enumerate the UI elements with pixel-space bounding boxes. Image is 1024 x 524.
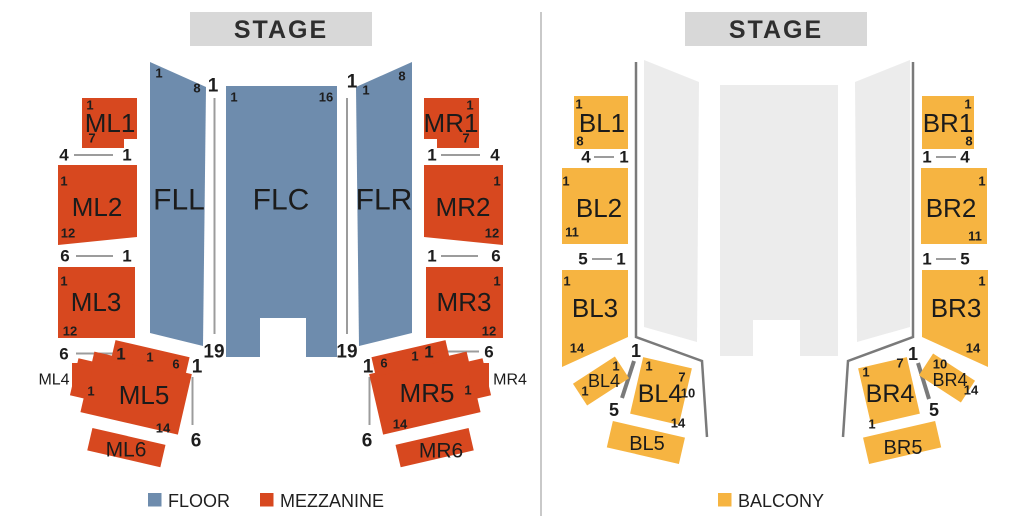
seat-row-number: 6 — [491, 247, 500, 266]
section-BR4-label: BR4 — [866, 380, 915, 408]
seat-row-number: 1 — [60, 174, 67, 189]
seat-maps-svg: STAGE FLL FLC FLR — [0, 0, 1024, 524]
legend-swatch-mezzanine — [260, 493, 274, 507]
stage-label-left: STAGE — [234, 16, 328, 44]
seat-row-number: 1 — [192, 357, 203, 378]
legend-floor-mezz: FLOOR MEZZANINE — [148, 491, 384, 511]
seat-row-number: 1 — [575, 97, 582, 112]
section-ML6-label: ML6 — [106, 439, 147, 462]
seat-row-number: 1 — [146, 350, 153, 365]
section-BR4-side-label: BR4 — [932, 370, 967, 390]
seat-row-number: 14 — [966, 341, 981, 356]
seat-row-number: 16 — [319, 90, 333, 105]
balcony-map: STAGE BL1 BR1 BL2 BR2 BL3 BR3 BL — [562, 12, 988, 511]
seat-row-number: 1 — [619, 148, 628, 167]
seat-row-number: 7 — [88, 131, 95, 146]
seat-row-number: 4 — [581, 148, 591, 167]
seat-row-number: 4 — [490, 146, 500, 165]
seat-row-number: 19 — [203, 342, 224, 363]
seat-row-number: 5 — [578, 250, 587, 269]
seat-row-number: 1 — [208, 76, 219, 97]
seat-map-page: STAGE FLL FLC FLR — [0, 0, 1024, 524]
seat-row-number: 1 — [978, 174, 985, 189]
seat-row-number: 1 — [155, 66, 162, 81]
section-MR5-label: MR5 — [400, 378, 455, 408]
legend-balcony: BALCONY — [718, 491, 824, 511]
section-MR3-label: MR3 — [437, 287, 492, 317]
section-MR4-label: MR4 — [493, 372, 527, 389]
section-BL1-label: BL1 — [579, 108, 625, 138]
section-floor-disabled-left — [644, 60, 699, 342]
seat-row-number: 19 — [336, 342, 357, 363]
seat-row-number: 1 — [922, 250, 931, 269]
legend-label-floor: FLOOR — [168, 491, 230, 511]
seat-row-number: 1 — [122, 247, 131, 266]
seat-row-number: 11 — [968, 229, 982, 244]
legend-swatch-balcony — [718, 493, 732, 507]
seat-row-number: 1 — [612, 359, 619, 374]
section-floor-disabled-right — [855, 60, 910, 342]
section-BL5-label: BL5 — [629, 433, 665, 455]
seat-row-number: 12 — [482, 324, 496, 339]
seat-row-number: 10 — [681, 386, 695, 401]
section-MR2-label: MR2 — [436, 192, 491, 222]
seat-row-number: 1 — [230, 90, 237, 105]
seat-row-number: 7 — [678, 370, 685, 385]
seat-row-number: 8 — [576, 134, 583, 149]
seat-row-number: 1 — [427, 247, 436, 266]
section-BR3-label: BR3 — [931, 293, 982, 323]
seat-row-number: 14 — [393, 417, 408, 432]
seat-row-number: 1 — [978, 274, 985, 289]
seat-row-number: 1 — [60, 274, 67, 289]
seat-row-number: 8 — [965, 134, 972, 149]
section-FLL-label: FLL — [153, 184, 205, 217]
seat-row-number: 14 — [964, 383, 979, 398]
seat-row-number: 6 — [191, 431, 202, 452]
seat-row-number: 1 — [964, 97, 971, 112]
seat-row-number: 12 — [485, 226, 499, 241]
seat-row-number: 1 — [493, 174, 500, 189]
seat-row-number: 5 — [960, 250, 969, 269]
section-BL4-label: BL4 — [638, 380, 683, 408]
seat-row-number: 1 — [868, 417, 875, 432]
seat-row-number: 1 — [362, 83, 369, 98]
section-MR1-label: MR1 — [424, 108, 479, 138]
seat-row-number: 14 — [671, 416, 686, 431]
seat-row-number: 7 — [462, 131, 469, 146]
seat-row-number: 1 — [493, 274, 500, 289]
seat-row-number: 1 — [116, 345, 125, 364]
seat-row-number: 1 — [411, 349, 418, 364]
seat-row-number: 1 — [424, 343, 433, 362]
seat-row-number: 6 — [380, 356, 387, 371]
section-BL3-label: BL3 — [572, 293, 618, 323]
section-ML4-label: ML4 — [38, 372, 69, 389]
seat-row-number: 1 — [908, 344, 918, 364]
seat-row-number: 1 — [862, 365, 869, 380]
seat-row-number: 1 — [922, 148, 931, 167]
seat-row-number: 1 — [363, 357, 374, 378]
seat-row-number: 6 — [60, 247, 69, 266]
section-FLC-label: FLC — [253, 184, 310, 217]
seat-row-number: 1 — [563, 274, 570, 289]
section-ML2-label: ML2 — [72, 192, 123, 222]
seat-row-number: 5 — [929, 400, 939, 420]
seat-row-number: 6 — [59, 345, 68, 364]
section-ML5-label: ML5 — [119, 380, 170, 410]
seat-row-number: 1 — [347, 72, 358, 93]
seat-row-number: 14 — [570, 341, 585, 356]
floor-mezz-map: STAGE FLL FLC FLR — [38, 12, 527, 511]
seat-row-number: 1 — [427, 146, 436, 165]
seat-row-number: 1 — [122, 146, 131, 165]
legend-swatch-floor — [148, 493, 162, 507]
seat-row-number: 1 — [562, 174, 569, 189]
section-FLR-label: FLR — [356, 184, 413, 217]
seat-row-number: 8 — [193, 81, 200, 96]
section-BR5-label: BR5 — [884, 437, 923, 459]
seat-row-number: 6 — [484, 343, 493, 362]
seat-row-number: 14 — [156, 421, 171, 436]
seat-row-number: 10 — [933, 357, 947, 372]
section-floor-disabled-center — [720, 85, 838, 356]
section-FLC[interactable] — [226, 86, 337, 357]
section-MR6-label: MR6 — [419, 440, 463, 463]
seat-row-number: 1 — [645, 359, 652, 374]
seat-row-number: 5 — [609, 400, 619, 420]
seat-row-number: 1 — [87, 384, 94, 399]
section-BL4-side-label: BL4 — [588, 371, 620, 391]
section-ML3-label: ML3 — [71, 287, 122, 317]
seat-row-number: 1 — [464, 383, 471, 398]
legend-label-mezzanine: MEZZANINE — [280, 491, 384, 511]
stage-label-right: STAGE — [729, 16, 823, 44]
seat-row-number: 6 — [172, 357, 179, 372]
seat-row-number: 1 — [631, 341, 641, 361]
seat-row-number: 6 — [362, 431, 373, 452]
seat-row-number: 1 — [581, 384, 588, 399]
seat-row-number: 12 — [63, 324, 77, 339]
seat-row-number: 4 — [960, 148, 970, 167]
seat-row-number: 12 — [61, 226, 75, 241]
seat-row-number: 8 — [398, 69, 405, 84]
seat-row-number: 1 — [86, 98, 93, 113]
seat-row-number: 4 — [59, 146, 69, 165]
legend-label-balcony: BALCONY — [738, 491, 824, 511]
section-BR2-label: BR2 — [926, 193, 977, 223]
seat-row-number: 1 — [616, 250, 625, 269]
seat-row-number: 1 — [466, 98, 473, 113]
seat-row-number: 7 — [896, 356, 903, 371]
section-BL2-label: BL2 — [576, 193, 622, 223]
seat-row-number: 11 — [565, 225, 579, 240]
